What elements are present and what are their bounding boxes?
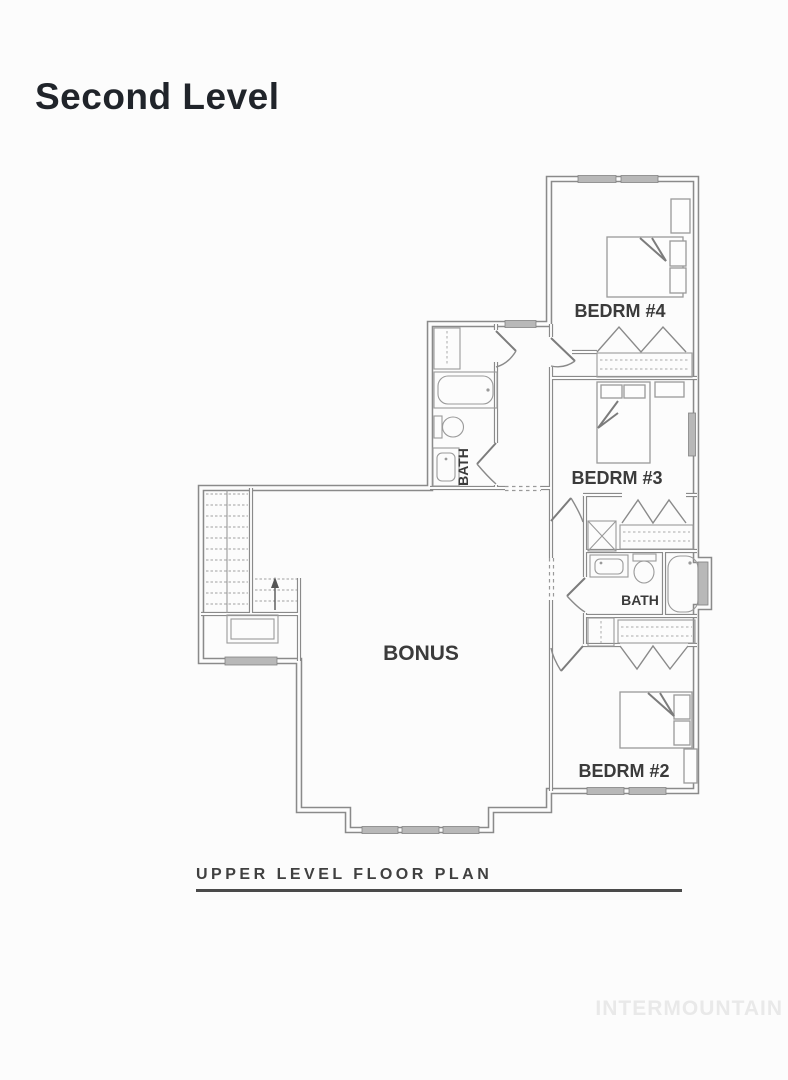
dresser-icon xyxy=(684,749,697,783)
toilet-icon xyxy=(633,554,656,583)
room-label-bedrm4: BEDRM #4 xyxy=(574,301,665,321)
closet-bifold-doors xyxy=(597,327,692,377)
closet-bifold-doors xyxy=(620,646,688,669)
room-label-bonus: BONUS xyxy=(383,642,459,665)
bathroom2-door xyxy=(567,578,585,612)
bed-icon xyxy=(620,692,692,748)
bedroom3-door xyxy=(551,498,583,522)
bathtub-icon xyxy=(434,372,497,408)
stairwell-railing xyxy=(227,615,278,643)
window xyxy=(629,788,666,795)
room-label-bedrm3: BEDRM #3 xyxy=(571,468,662,488)
window xyxy=(443,827,479,834)
plan-caption: UPPER LEVEL FLOOR PLAN xyxy=(196,866,682,892)
shower-icon xyxy=(588,521,616,551)
bedroom2-door xyxy=(551,646,583,671)
bath-door-top xyxy=(496,331,516,367)
linen-closet xyxy=(434,328,460,369)
room-label-bedrm2: BEDRM #2 xyxy=(578,761,669,781)
upper-bathroom-fixtures xyxy=(433,328,516,486)
sink-icon xyxy=(590,555,628,577)
window xyxy=(621,176,658,183)
window xyxy=(402,827,439,834)
closet-bifold-doors xyxy=(620,500,693,549)
window xyxy=(587,788,624,795)
closet-shelves xyxy=(588,618,695,646)
stairs-up-arrow xyxy=(271,577,279,610)
room-label-bath-middle: BATH xyxy=(621,592,659,608)
dresser-icon xyxy=(671,199,690,233)
bedroom4-furniture xyxy=(597,199,692,377)
room-label-bath-upper: BATH xyxy=(455,448,471,486)
bed-icon xyxy=(597,382,650,463)
window xyxy=(698,562,708,605)
bathtub-icon xyxy=(668,556,698,612)
bedroom3-furniture xyxy=(588,382,693,551)
bath-door-bottom xyxy=(477,443,496,484)
toilet-icon xyxy=(434,416,464,438)
bed-icon xyxy=(607,237,686,297)
cased-openings xyxy=(505,487,554,601)
floor-plan-page: Second Level xyxy=(0,0,788,1080)
window xyxy=(362,827,398,834)
window xyxy=(689,413,696,456)
window xyxy=(578,176,616,183)
floor-plan-drawing: BEDRM #4 BEDRM #3 BEDRM #2 BATH BATH BON… xyxy=(0,0,788,1080)
bedroom4-door xyxy=(551,338,575,367)
bedroom2-furniture xyxy=(588,618,697,783)
watermark-text: INTERMOUNTAIN xyxy=(595,997,783,1021)
nightstand-icon xyxy=(655,382,684,397)
hall-doors xyxy=(551,338,585,671)
window xyxy=(505,321,536,328)
window xyxy=(225,657,277,665)
